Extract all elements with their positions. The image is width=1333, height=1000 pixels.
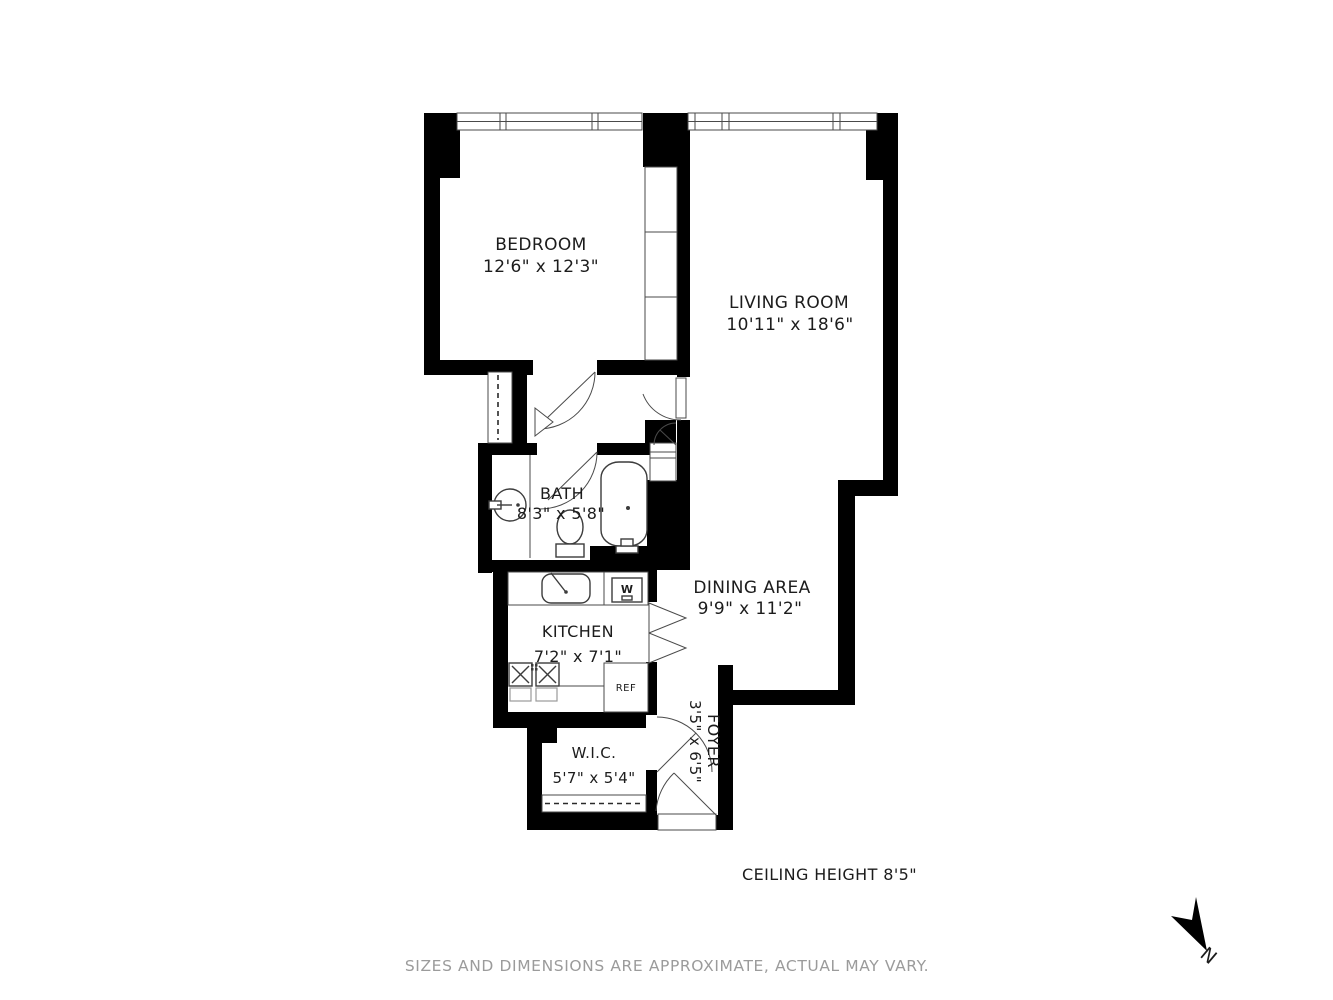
kitchen-sink-icon (542, 573, 590, 603)
kitchen-fixtures: W REF (508, 572, 648, 712)
room-label-wic: W.I.C. (572, 744, 617, 762)
room-dims-bedroom: 12'6" x 12'3" (483, 257, 599, 277)
room-dims-foyer: 3'5" x 6'5" (686, 700, 704, 783)
room-label-living: LIVING ROOM (729, 293, 849, 313)
north-label: N (1196, 943, 1221, 969)
room-label-bedroom: BEDROOM (495, 235, 587, 255)
bedroom-window-icon (457, 113, 642, 130)
bedroom-closet-icon (645, 167, 677, 360)
washer-icon: W (604, 572, 648, 605)
ceiling-height-note: CEILING HEIGHT 8'5" (742, 865, 917, 884)
hall-closet-icon (488, 372, 512, 443)
room-dims-bath: 8'3" x 5'8" (517, 504, 605, 523)
room-label-kitchen: KITCHEN (542, 622, 614, 641)
room-label-dining: DINING AREA (693, 578, 810, 598)
floor-plan-page: W REF BEDROOM 12'6" x 12'3" LIVING ROOM (0, 0, 1333, 1000)
refrigerator-label: REF (616, 683, 637, 694)
washer-label: W (621, 583, 633, 596)
disclaimer-note: SIZES AND DIMENSIONS ARE APPROXIMATE, AC… (405, 957, 929, 975)
room-dims-wic: 5'7" x 5'4" (552, 769, 635, 787)
living-room-window-icon (688, 113, 877, 130)
room-dims-dining: 9'9" x 11'2" (698, 599, 803, 619)
floor-plan-drawing: W REF BEDROOM 12'6" x 12'3" LIVING ROOM (0, 0, 1333, 1000)
room-dims-living: 10'11" x 18'6" (726, 315, 853, 335)
wic-rod-icon (542, 795, 646, 812)
bathtub-icon (601, 462, 647, 553)
refrigerator-icon: REF (604, 663, 648, 712)
stove-icon (509, 663, 559, 701)
north-arrow-icon: N (1171, 897, 1221, 969)
room-dims-kitchen: 7'2" x 7'1" (534, 647, 622, 666)
room-label-bath: BATH (540, 484, 584, 503)
room-label-foyer: FOYER (704, 714, 723, 768)
